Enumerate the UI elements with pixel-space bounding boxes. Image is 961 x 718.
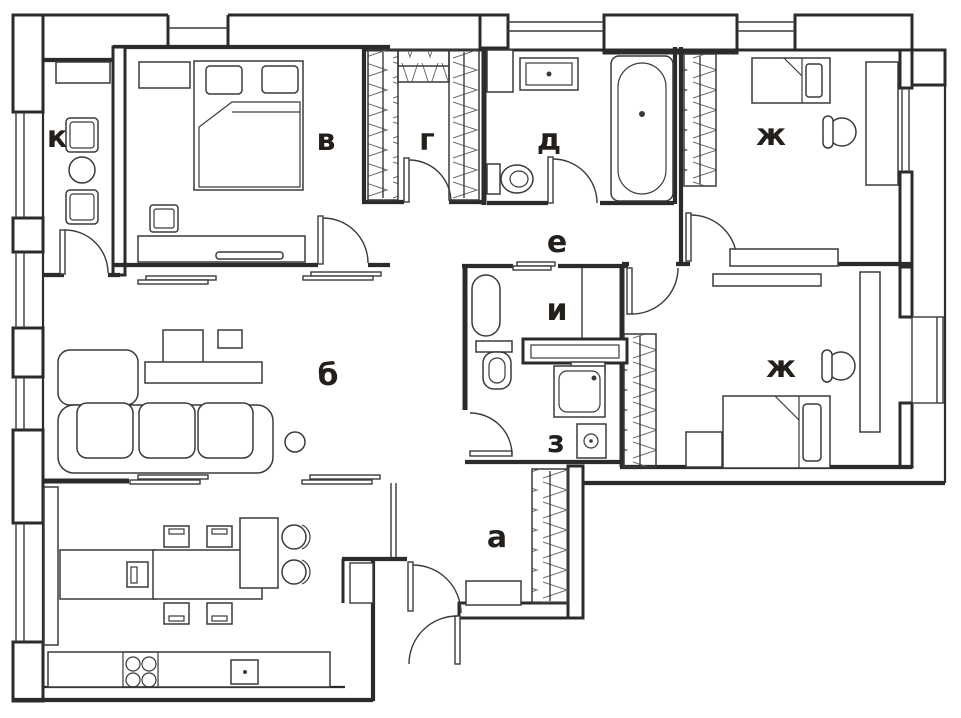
tv [216, 252, 283, 259]
dresser [730, 249, 838, 266]
door-closet-g [404, 158, 451, 202]
shelf [713, 274, 821, 286]
door-bedroom-zh2 [627, 268, 678, 314]
window-left-4 [16, 523, 24, 642]
window-top-bath [507, 22, 604, 31]
water-heater [472, 275, 500, 336]
room-label-zh2: ж [766, 350, 796, 385]
door-bath-d [548, 157, 597, 203]
pillow [262, 66, 298, 93]
bedroom-zh1-furniture [730, 58, 898, 266]
living-room-furniture [58, 330, 305, 473]
wardrobe-g-right [449, 50, 479, 200]
toilet-tank [476, 341, 512, 352]
window-top-bedroom [737, 22, 795, 31]
room-label-z: з [547, 425, 564, 460]
room-label-zh1: ж [756, 118, 786, 153]
duct [487, 50, 513, 92]
pillow [806, 64, 822, 97]
room-label-v: в [317, 123, 336, 158]
door-bedroom-v [318, 216, 368, 264]
window-left-1 [16, 112, 24, 218]
coffee-table [145, 362, 262, 383]
room-label-g: г [419, 123, 435, 158]
desk-chair [823, 116, 856, 148]
room-label-a: а [487, 520, 507, 555]
wardrobe-zh2 [624, 334, 656, 467]
pillow [803, 404, 821, 461]
desk [866, 62, 898, 185]
balcony-table [69, 157, 95, 183]
window-left-2 [16, 252, 24, 328]
pillow [206, 66, 242, 94]
floor-plan-canvas: к в г д ж е и б з ж а [0, 0, 961, 718]
wardrobe-zh1 [684, 54, 716, 186]
dining-chair [207, 603, 232, 624]
nightstand [686, 432, 722, 467]
dining-chair [207, 526, 232, 547]
wardrobe-hall-a [532, 469, 568, 603]
bay-window [912, 317, 945, 403]
room-label-b: б [318, 358, 339, 393]
wardrobe-g-top [398, 50, 449, 82]
round-table [285, 432, 305, 452]
dining-chair [164, 526, 189, 547]
bathroom-d-fixtures [487, 50, 673, 201]
counter-strip [44, 487, 58, 645]
window-right-top [902, 88, 909, 172]
bench [466, 581, 521, 605]
entrance-door [408, 562, 461, 664]
counter [523, 339, 627, 363]
sofa-cushion [139, 403, 195, 458]
kitchen-furniture [44, 487, 330, 687]
toilet-tank [487, 164, 500, 194]
room-label-e: е [547, 225, 567, 260]
room-label-k: к [47, 120, 67, 155]
armchair [240, 518, 278, 588]
wardrobe-g-left [368, 50, 398, 200]
ottoman [58, 350, 138, 405]
door-balcony [60, 230, 108, 274]
entrance-furniture [466, 581, 521, 605]
door-bath-z [470, 413, 512, 456]
dining-chair [164, 603, 189, 624]
desk-chair [822, 350, 855, 382]
stool [282, 525, 310, 549]
room-label-d: д [537, 123, 561, 158]
kitchen-counter [48, 652, 330, 687]
room-label-i: и [546, 293, 567, 328]
sofa-cushion [77, 403, 133, 458]
kitchen-sink [231, 660, 258, 684]
bedroom-v-furniture [138, 61, 305, 262]
sofa-cushion [198, 403, 253, 458]
desk [860, 272, 880, 432]
floor-plan: к в г д ж е и б з ж а [0, 0, 961, 718]
dresser [139, 62, 190, 88]
stool [282, 560, 310, 584]
window-left-3 [16, 377, 24, 430]
side-table [218, 330, 242, 348]
